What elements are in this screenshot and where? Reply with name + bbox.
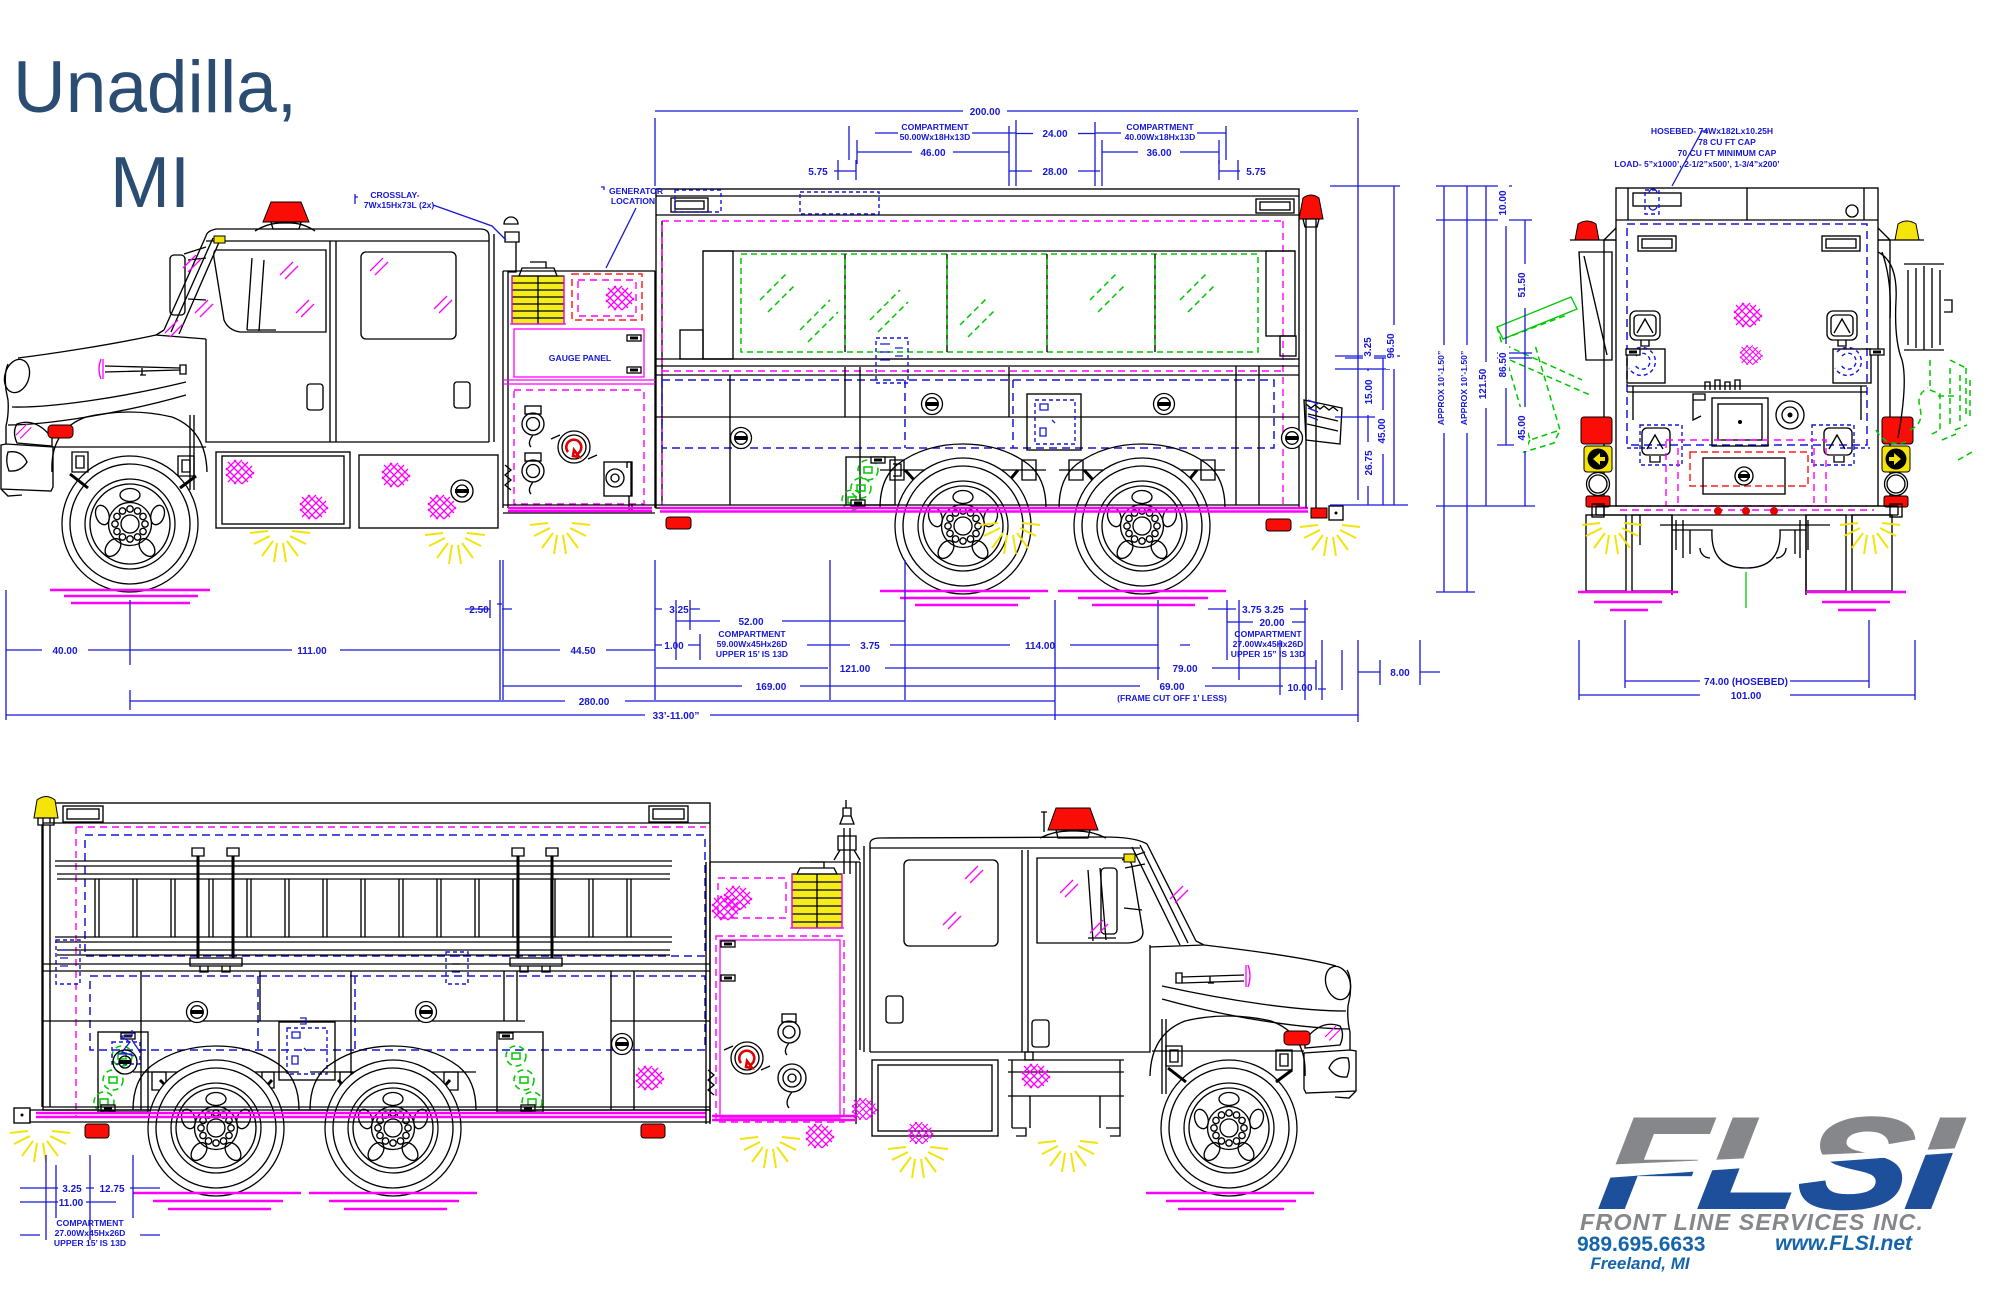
svg-text:MI: MI (110, 143, 190, 223)
svg-text:7Wx15Hx73L (2x): 7Wx15Hx73L (2x) (364, 200, 435, 210)
svg-text:45.00: 45.00 (1517, 415, 1528, 440)
svg-text:96.50: 96.50 (1386, 333, 1397, 358)
svg-text:UPPER 15’ IS 13D: UPPER 15’ IS 13D (54, 1238, 126, 1248)
svg-text:10.00: 10.00 (1287, 683, 1312, 694)
svg-text:Freeland, MI: Freeland, MI (1590, 1254, 1690, 1273)
svg-text:200.00: 200.00 (970, 107, 1001, 118)
svg-text:28.00: 28.00 (1042, 167, 1067, 178)
svg-text:HOSEBED- 74Wx182Lx10.25H: HOSEBED- 74Wx182Lx10.25H (1651, 126, 1773, 136)
svg-text:40.00: 40.00 (52, 646, 77, 657)
svg-text:86.50: 86.50 (1498, 352, 1509, 377)
svg-text:GENERATOR: GENERATOR (609, 186, 664, 196)
svg-text:3.25: 3.25 (669, 605, 689, 616)
svg-text:COMPARTMENT: COMPARTMENT (718, 629, 786, 639)
svg-text:51.50: 51.50 (1517, 272, 1528, 297)
svg-text:3.75 3.25: 3.75 3.25 (1242, 605, 1284, 616)
svg-text:45.00: 45.00 (1377, 418, 1388, 443)
svg-text:989.695.6633: 989.695.6633 (1577, 1233, 1705, 1256)
svg-text:79.00: 79.00 (1172, 664, 1197, 675)
svg-text:(FRAME CUT OFF 1’ LESS): (FRAME CUT OFF 1’ LESS) (1117, 693, 1227, 703)
svg-text:1.00: 1.00 (664, 641, 684, 652)
svg-text:COMPARTMENT: COMPARTMENT (56, 1218, 124, 1228)
svg-text:52.00: 52.00 (738, 617, 763, 628)
svg-text:COMPARTMENT: COMPARTMENT (1234, 629, 1302, 639)
svg-text:24.00: 24.00 (1042, 129, 1067, 140)
svg-text:5.75: 5.75 (1246, 167, 1266, 178)
svg-text:50.00Wx18Hx13D: 50.00Wx18Hx13D (900, 132, 971, 142)
svg-text:78 CU FT CAP: 78 CU FT CAP (1698, 137, 1756, 147)
svg-text:27.00Wx45Hx26D: 27.00Wx45Hx26D (1233, 639, 1304, 649)
svg-text:121.50: 121.50 (1478, 368, 1489, 399)
svg-text:280.00: 280.00 (579, 697, 610, 708)
svg-text:111.00: 111.00 (297, 646, 327, 657)
svg-text:40.00Wx18Hx13D: 40.00Wx18Hx13D (1125, 132, 1196, 142)
svg-text:27.00Wx45Hx26D: 27.00Wx45Hx26D (55, 1228, 126, 1238)
svg-text:10.00: 10.00 (1498, 190, 1509, 215)
svg-text:44.50: 44.50 (570, 646, 595, 657)
svg-text:59.00Wx45Hx26D: 59.00Wx45Hx26D (717, 639, 788, 649)
svg-text:APPROX 10’-1.50”: APPROX 10’-1.50” (1459, 351, 1469, 426)
svg-text:GAUGE PANEL: GAUGE PANEL (549, 353, 611, 363)
svg-text:8.00: 8.00 (1390, 668, 1410, 679)
svg-text:169.00: 169.00 (756, 682, 787, 693)
svg-text:36.00: 36.00 (1146, 148, 1171, 159)
svg-text:LOCATION: LOCATION (611, 196, 655, 206)
svg-text:12.75: 12.75 (99, 1184, 124, 1195)
svg-text:3.75: 3.75 (860, 641, 880, 652)
svg-text:APPROX 10’-1.50”: APPROX 10’-1.50” (1436, 351, 1446, 426)
svg-text:33’-11.00”: 33’-11.00” (653, 711, 700, 722)
svg-text:121.00: 121.00 (840, 664, 871, 675)
svg-text:26.75: 26.75 (1364, 450, 1375, 475)
svg-text:UPPER 15” IS 13D: UPPER 15” IS 13D (1231, 649, 1306, 659)
svg-text:COMPARTMENT: COMPARTMENT (1126, 122, 1194, 132)
svg-text:UPPER 15’ IS 13D: UPPER 15’ IS 13D (716, 649, 788, 659)
svg-text:3.25: 3.25 (62, 1184, 82, 1195)
svg-text:11.00: 11.00 (59, 1198, 84, 1209)
svg-text:20.00: 20.00 (1259, 618, 1284, 629)
svg-text:5.75: 5.75 (808, 167, 828, 178)
svg-text:Unadilla,: Unadilla, (13, 47, 297, 128)
svg-text:101.00: 101.00 (1731, 691, 1762, 702)
svg-text:15.00: 15.00 (1364, 379, 1375, 404)
svg-text:114.00: 114.00 (1025, 641, 1055, 652)
svg-text:CROSSLAY-: CROSSLAY- (370, 190, 419, 200)
svg-text:74.00 (HOSEBED): 74.00 (HOSEBED) (1704, 677, 1788, 688)
svg-text:www.FLSI.net: www.FLSI.net (1775, 1232, 1913, 1255)
svg-text:3.25: 3.25 (1363, 337, 1374, 357)
svg-text:COMPARTMENT: COMPARTMENT (901, 122, 969, 132)
svg-text:2.50: 2.50 (469, 605, 489, 616)
svg-text:46.00: 46.00 (920, 148, 945, 159)
svg-text:69.00: 69.00 (1159, 682, 1184, 693)
svg-text:LOAD- 5”x1000’, 2-1/2”x500’,: LOAD- 5”x1000’, 2-1/2”x500’, 1-3/4”x200’ (1614, 159, 1779, 169)
